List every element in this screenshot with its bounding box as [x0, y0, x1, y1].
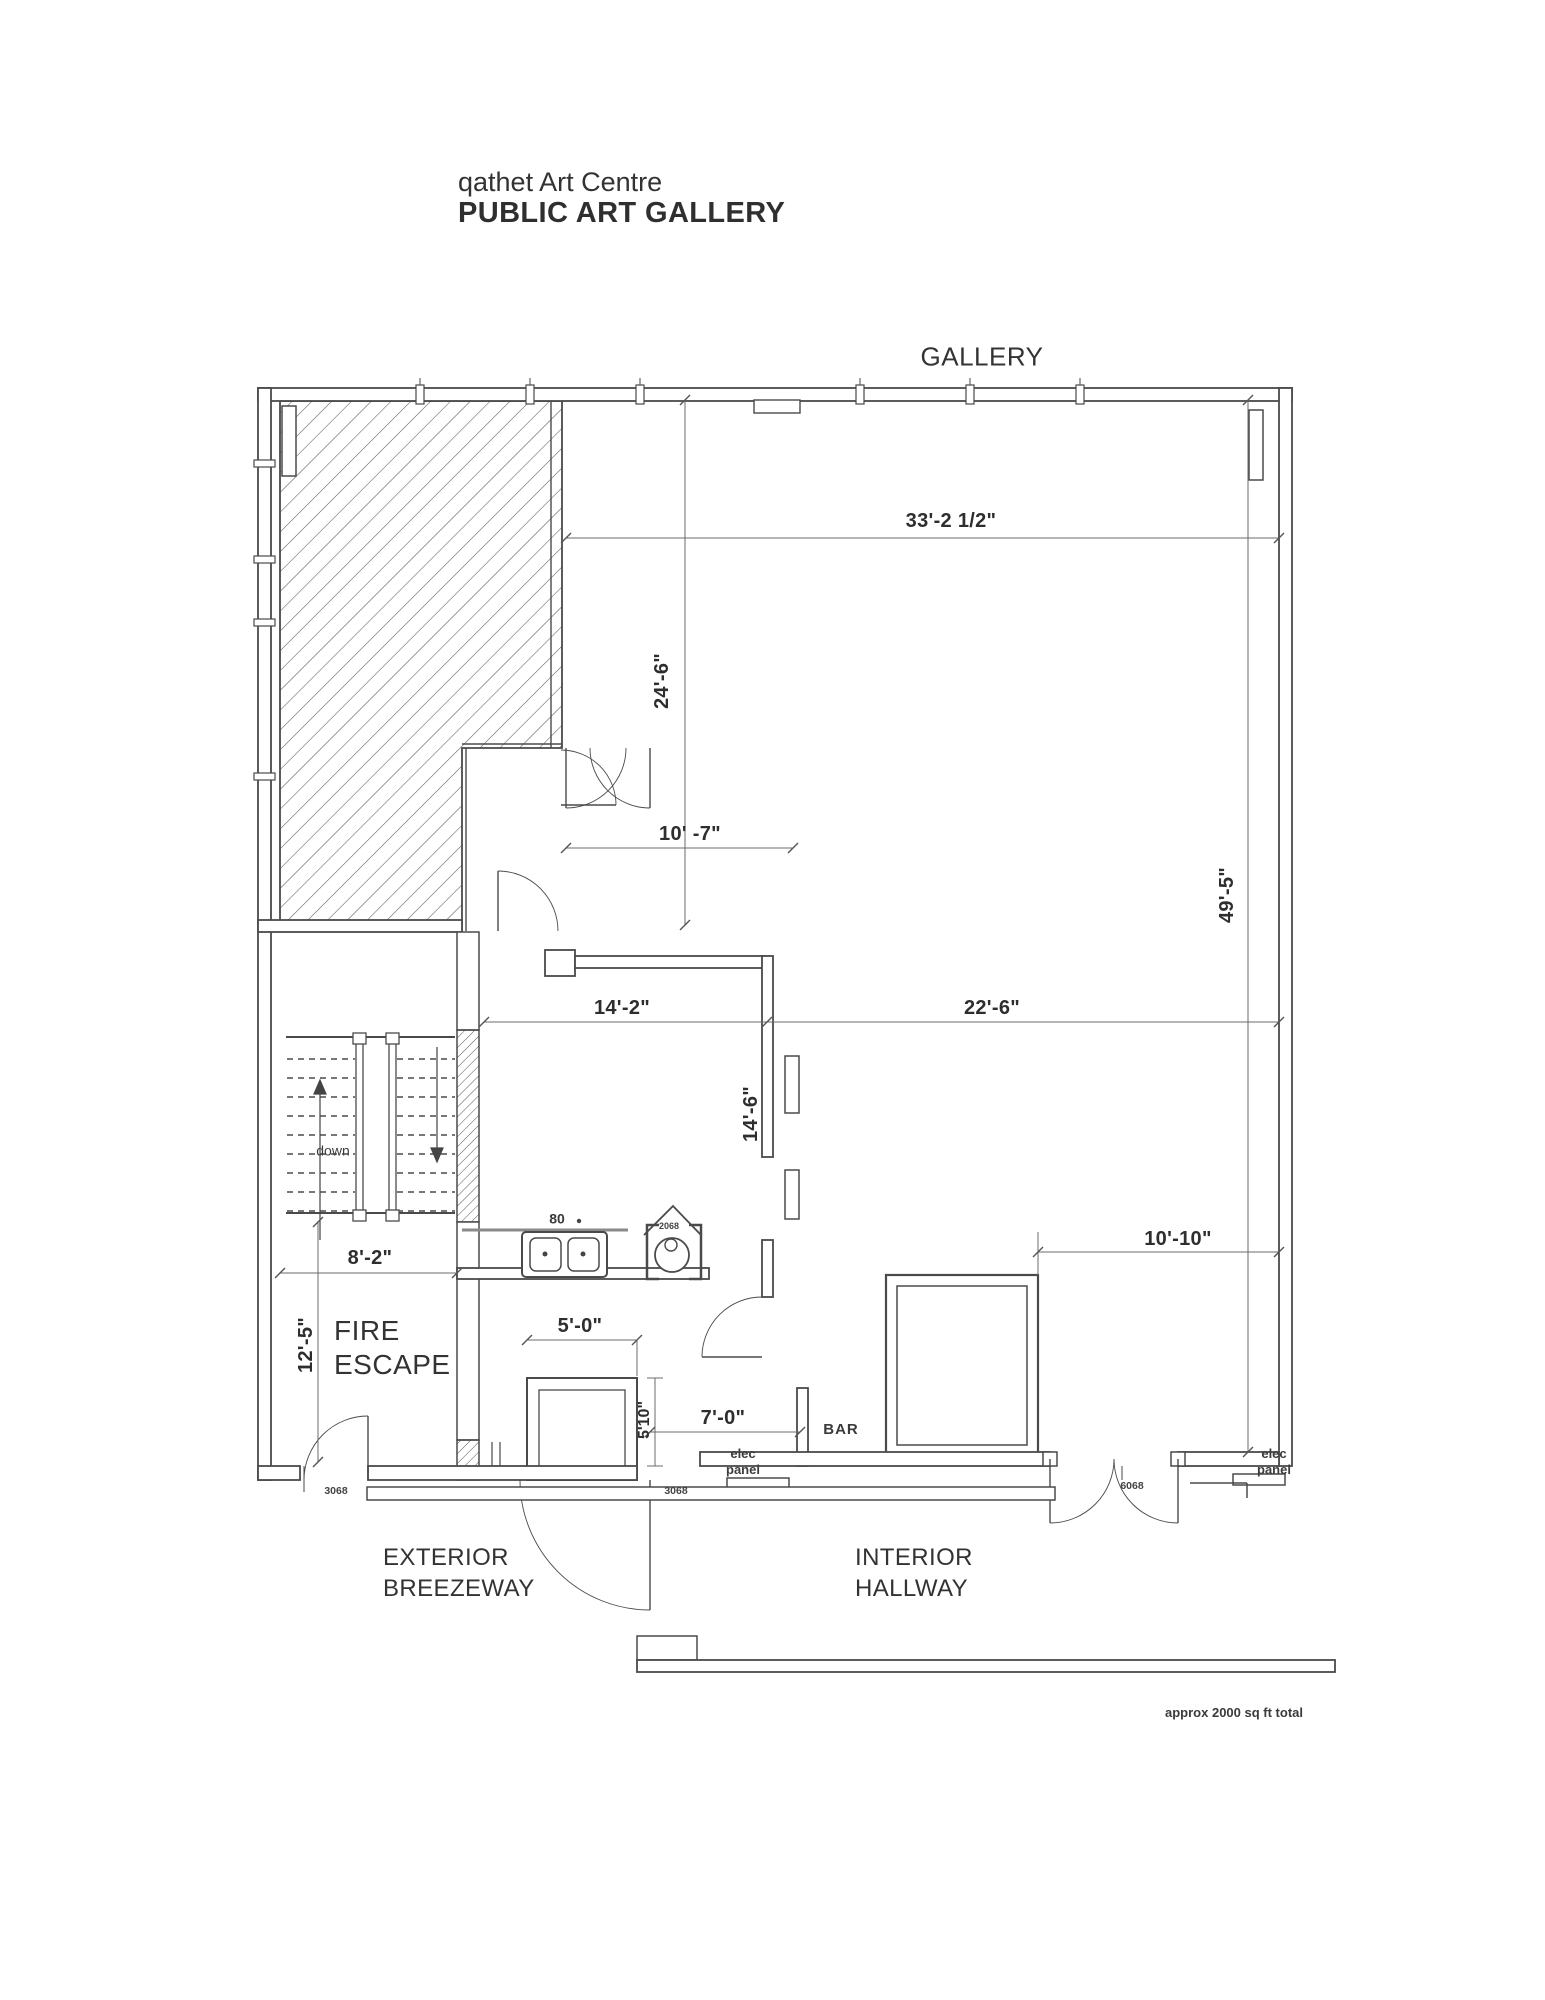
kitchen-walls [545, 950, 799, 1357]
dim-closet-width: 5'-0" [558, 1315, 603, 1337]
dim-lower-right-width: 10'-10" [1144, 1228, 1212, 1250]
wc-door-code-label: 2068 [659, 1222, 679, 1232]
floor-plan-linework [0, 0, 1545, 2000]
vestibule-doors [498, 748, 650, 931]
elec-panel-right-label: elec panel [1257, 1446, 1291, 1479]
stair-rail [353, 1033, 399, 1221]
fire-escape-line1: FIRE [334, 1314, 451, 1348]
dim-gallery-upper-depth: 24'-6" [651, 653, 673, 709]
fire-escape-door-code: 3068 [324, 1486, 347, 1498]
dim-vestibule-width: 10' -7" [659, 823, 721, 845]
dim-kitchen-depth: 14'-6" [740, 1086, 762, 1142]
interior-hallway-label: INTERIOR HALLWAY [855, 1543, 973, 1604]
wc-fixtures [457, 1206, 709, 1279]
fire-escape-label: FIRE ESCAPE [334, 1314, 451, 1382]
dim-bar-passage-width: 7'-0" [701, 1407, 746, 1429]
dim-gallery-lower-width: 22'-6" [964, 997, 1020, 1019]
title-line1: qathet Art Centre [458, 168, 785, 198]
dim-fire-escape-depth: 12'-5" [295, 1317, 317, 1373]
gallery-label: GALLERY [921, 343, 1044, 372]
title-line2: PUBLIC ART GALLERY [458, 198, 785, 230]
hatched-area [280, 401, 562, 931]
elec-panel-left-label: elec panel [726, 1446, 760, 1479]
sink-code-label: 80 [549, 1211, 565, 1226]
dim-fire-escape-width: 8'-2" [348, 1247, 393, 1269]
breezeway-door-code: 3068 [664, 1486, 687, 1498]
dim-closet-depth: 5'10" [636, 1401, 654, 1439]
bar-label: BAR [823, 1422, 859, 1439]
drawing-title: qathet Art Centre PUBLIC ART GALLERY [458, 168, 785, 230]
stairwell [258, 920, 479, 1480]
dim-gallery-depth: 49'-5" [1216, 867, 1238, 923]
stair-down-label: down [316, 1143, 349, 1158]
hallway-door-code: 6068 [1120, 1481, 1143, 1493]
floor-plan-page: qathet Art Centre PUBLIC ART GALLERY GAL… [0, 0, 1545, 2000]
faucet-dot [577, 1219, 581, 1223]
closet [492, 1378, 637, 1480]
fire-escape-line2: ESCAPE [334, 1348, 451, 1382]
area-note: approx 2000 sq ft total [1165, 1706, 1303, 1720]
dim-gallery-width: 33'-2 1/2" [906, 510, 997, 532]
dim-kitchen-width: 14'-2" [594, 997, 650, 1019]
exterior-breezeway-label: EXTERIOR BREEZEWAY [383, 1543, 535, 1604]
